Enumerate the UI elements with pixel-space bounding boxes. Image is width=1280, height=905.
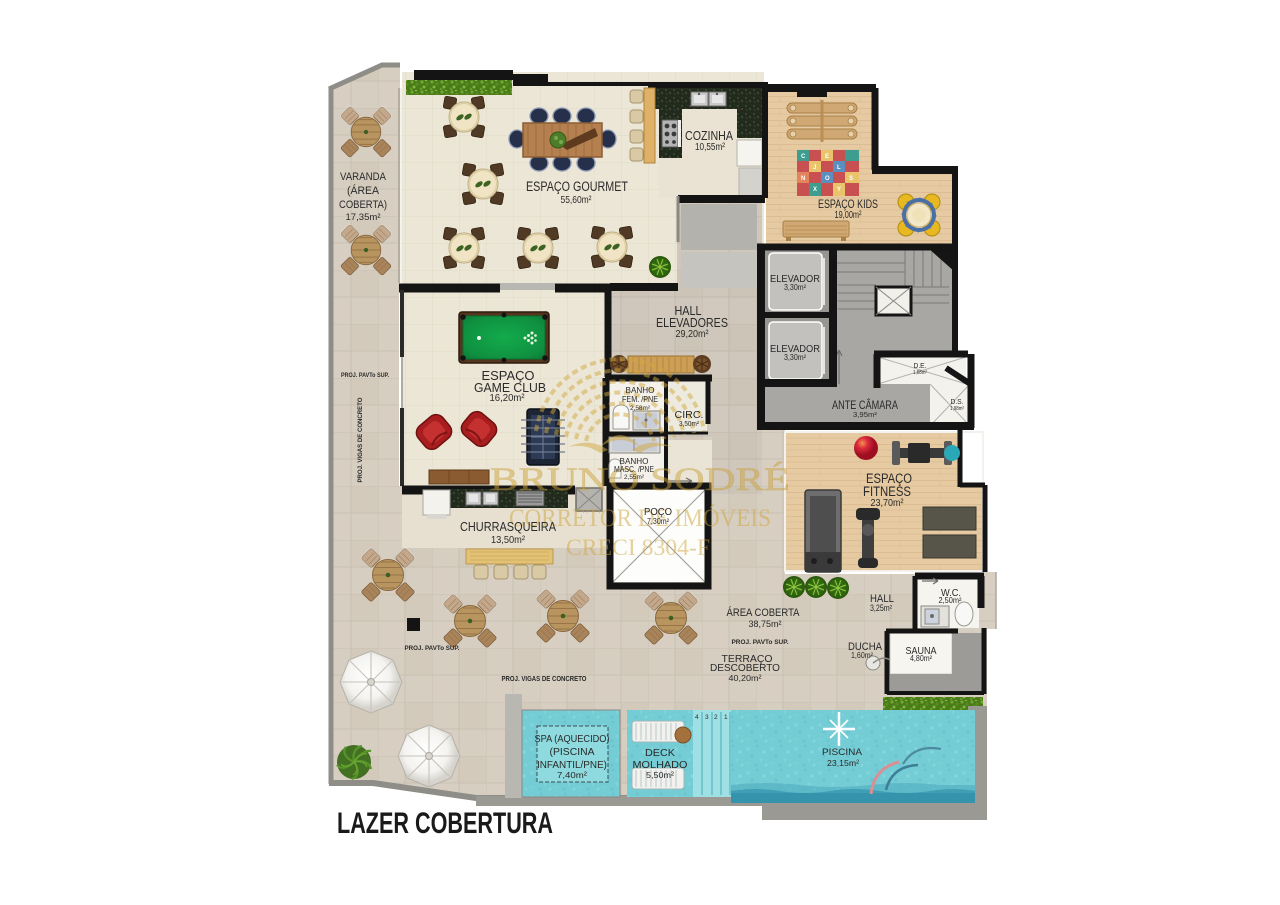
svg-text:PROJ. VIGAS DE CONCRETO: PROJ. VIGAS DE CONCRETO <box>502 676 587 683</box>
svg-text:FEM. /PNE: FEM. /PNE <box>622 395 658 404</box>
svg-text:3,30m²: 3,30m² <box>784 283 806 292</box>
svg-text:PROJ. PAVTo SUP.: PROJ. PAVTo SUP. <box>732 639 789 646</box>
svg-text:CRECI 8304-F: CRECI 8304-F <box>566 535 710 560</box>
svg-text:E: E <box>825 154 829 160</box>
svg-text:PISCINA: PISCINA <box>822 747 863 758</box>
svg-text:2,58m²: 2,58m² <box>630 405 651 412</box>
svg-text:MASC. /PNE: MASC. /PNE <box>614 465 654 474</box>
svg-text:3,25m²: 3,25m² <box>870 603 892 613</box>
svg-text:10,55m²: 10,55m² <box>695 142 726 153</box>
svg-text:PROJ. VIGAS DE CONCRETO: PROJ. VIGAS DE CONCRETO <box>357 398 364 483</box>
svg-text:N: N <box>801 176 805 182</box>
svg-text:13,50m²: 13,50m² <box>491 534 525 546</box>
svg-text:1,98m²: 1,98m² <box>950 406 964 412</box>
svg-text:2,55m²: 2,55m² <box>624 474 645 481</box>
svg-text:3,95m²: 3,95m² <box>853 410 878 419</box>
svg-text:2,50m²: 2,50m² <box>939 596 962 605</box>
svg-text:VARANDA: VARANDA <box>340 171 387 183</box>
svg-text:3: 3 <box>705 714 709 721</box>
svg-text:23,70m²: 23,70m² <box>871 497 904 509</box>
svg-text:7,30m²: 7,30m² <box>647 517 669 526</box>
svg-text:X: X <box>813 187 817 193</box>
svg-text:S: S <box>849 176 853 182</box>
svg-text:3,30m²: 3,30m² <box>784 353 806 362</box>
svg-text:LAZER COBERTURA: LAZER COBERTURA <box>337 807 553 840</box>
svg-text:J: J <box>813 165 816 171</box>
svg-text:19,00m²: 19,00m² <box>835 210 862 221</box>
svg-text:ELEVADORES: ELEVADORES <box>656 316 728 330</box>
svg-text:BANHO: BANHO <box>626 386 655 395</box>
svg-text:4,80m²: 4,80m² <box>910 654 932 663</box>
svg-text:38,75m²: 38,75m² <box>749 619 782 630</box>
svg-text:C: C <box>801 154 806 160</box>
svg-text:(ÁREA: (ÁREA <box>347 184 380 197</box>
svg-text:7,40m²: 7,40m² <box>557 770 587 780</box>
svg-text:17,35m²: 17,35m² <box>346 212 381 223</box>
svg-text:SPA (AQUECIDO): SPA (AQUECIDO) <box>535 734 610 745</box>
svg-text:D.E.: D.E. <box>914 361 927 370</box>
svg-text:4: 4 <box>695 714 699 721</box>
svg-text:Y: Y <box>837 187 841 193</box>
svg-text:PROJ. PAVTo SUP.: PROJ. PAVTo SUP. <box>341 372 389 379</box>
svg-text:1,68m²: 1,68m² <box>913 370 927 376</box>
svg-text:40,20m²: 40,20m² <box>729 673 762 683</box>
svg-text:COZINHA: COZINHA <box>685 129 734 143</box>
svg-text:D.S.: D.S. <box>951 397 964 406</box>
svg-text:(PISCINA: (PISCINA <box>550 747 595 758</box>
svg-text:3,50m²: 3,50m² <box>679 419 699 428</box>
svg-text:1,60m²: 1,60m² <box>851 651 873 660</box>
svg-text:55,60m²: 55,60m² <box>561 194 592 206</box>
svg-text:16,20m²: 16,20m² <box>490 393 526 404</box>
svg-text:CHURRASQUEIRA: CHURRASQUEIRA <box>460 520 557 534</box>
svg-text:1: 1 <box>724 714 728 721</box>
svg-text:5,50m²: 5,50m² <box>646 770 674 780</box>
svg-text:L: L <box>837 165 841 171</box>
svg-text:ÁREA COBERTA: ÁREA COBERTA <box>727 606 801 619</box>
svg-text:ESPAÇO GOURMET: ESPAÇO GOURMET <box>526 179 628 194</box>
svg-text:2: 2 <box>714 714 718 721</box>
svg-text:23,15m²: 23,15m² <box>827 758 859 768</box>
svg-text:COBERTA): COBERTA) <box>339 199 387 211</box>
svg-text:PROJ. PAVTo SUP.: PROJ. PAVTo SUP. <box>405 645 460 652</box>
svg-text:O: O <box>825 176 830 182</box>
svg-text:29,20m²: 29,20m² <box>676 329 710 340</box>
svg-text:DECK: DECK <box>645 747 675 759</box>
svg-text:ESPAÇO KIDS: ESPAÇO KIDS <box>818 197 878 211</box>
